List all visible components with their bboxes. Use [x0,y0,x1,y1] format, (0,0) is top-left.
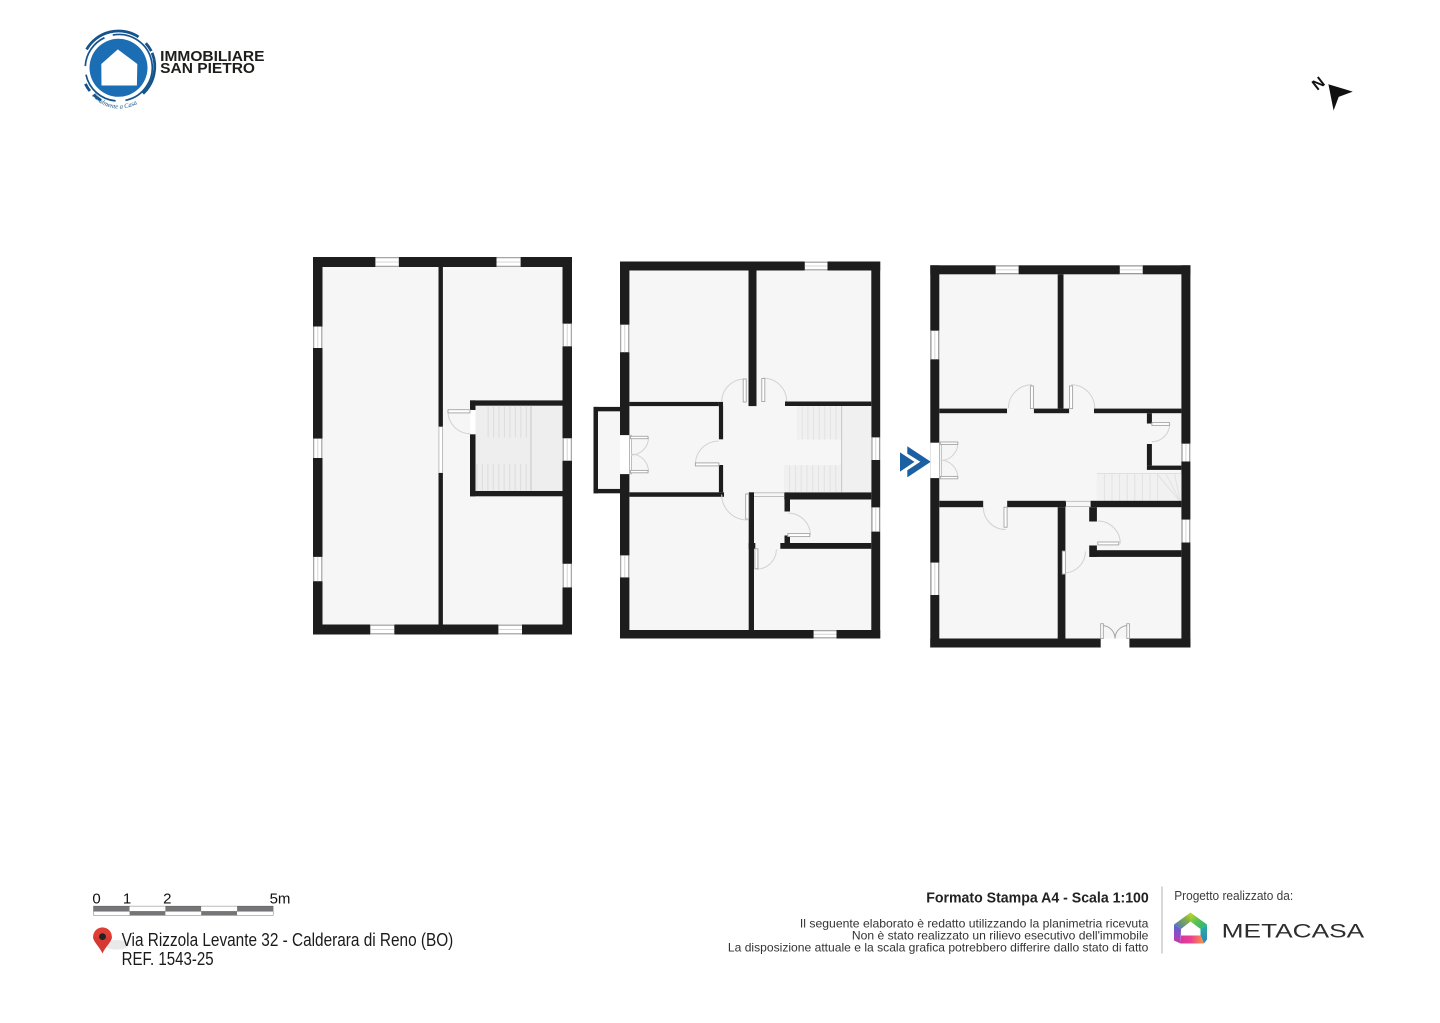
svg-text:Via Rizzola Levante 32 - Calde: Via Rizzola Levante 32 - Calderara di Re… [122,930,454,950]
svg-text:5m: 5m [270,891,291,908]
svg-text:REF. 1543-25: REF. 1543-25 [122,949,214,969]
svg-text:2: 2 [163,891,171,908]
svg-text:Progetto realizzato da:: Progetto realizzato da: [1174,888,1293,903]
svg-text:0: 0 [92,891,100,908]
svg-text:SAN PIETRO: SAN PIETRO [160,60,255,77]
svg-text:1: 1 [123,891,131,908]
svg-text:Formato Stampa A4 - Scala 1:10: Formato Stampa A4 - Scala 1:100 [926,889,1149,906]
svg-text:METACASA: METACASA [1222,920,1365,942]
svg-text:N: N [1309,74,1328,94]
svg-text:La disposizione attuale e la s: La disposizione attuale e la scala grafi… [728,941,1149,955]
